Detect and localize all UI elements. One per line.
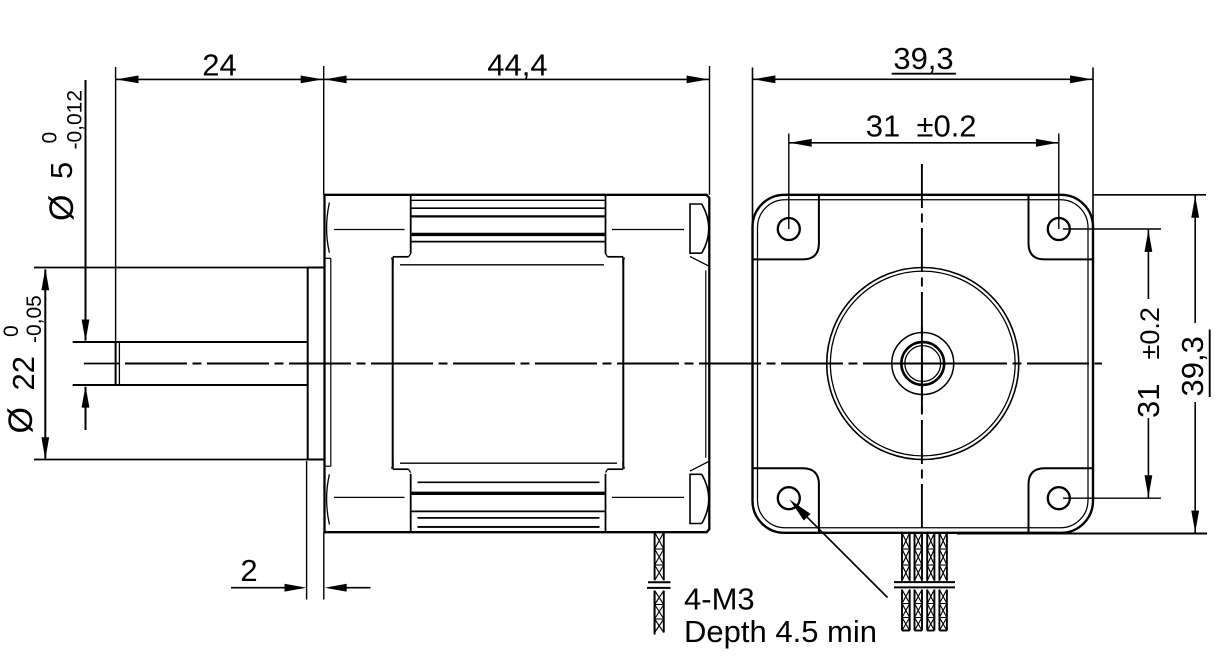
svg-text:31: 31 <box>866 109 900 144</box>
svg-text:24: 24 <box>202 48 236 83</box>
svg-text:±0.2: ±0.2 <box>916 109 976 144</box>
svg-text:Depth 4.5 min: Depth 4.5 min <box>684 614 877 649</box>
svg-text:5: 5 <box>44 162 79 179</box>
svg-text:Ø: Ø <box>2 407 40 433</box>
svg-text:-0,012: -0,012 <box>64 90 87 150</box>
svg-text:Ø: Ø <box>43 195 81 221</box>
svg-text:44,4: 44,4 <box>487 48 547 83</box>
svg-text:31: 31 <box>1131 384 1166 418</box>
svg-text:2: 2 <box>240 553 257 588</box>
svg-text:-0,05: -0,05 <box>23 295 46 343</box>
svg-text:22: 22 <box>6 356 41 390</box>
svg-text:4-M3: 4-M3 <box>684 582 755 617</box>
svg-text:0: 0 <box>39 132 62 144</box>
svg-text:39,3: 39,3 <box>893 41 953 76</box>
svg-text:39,3: 39,3 <box>1175 336 1210 396</box>
svg-text:±0.2: ±0.2 <box>1135 307 1165 359</box>
svg-text:0: 0 <box>0 325 23 337</box>
